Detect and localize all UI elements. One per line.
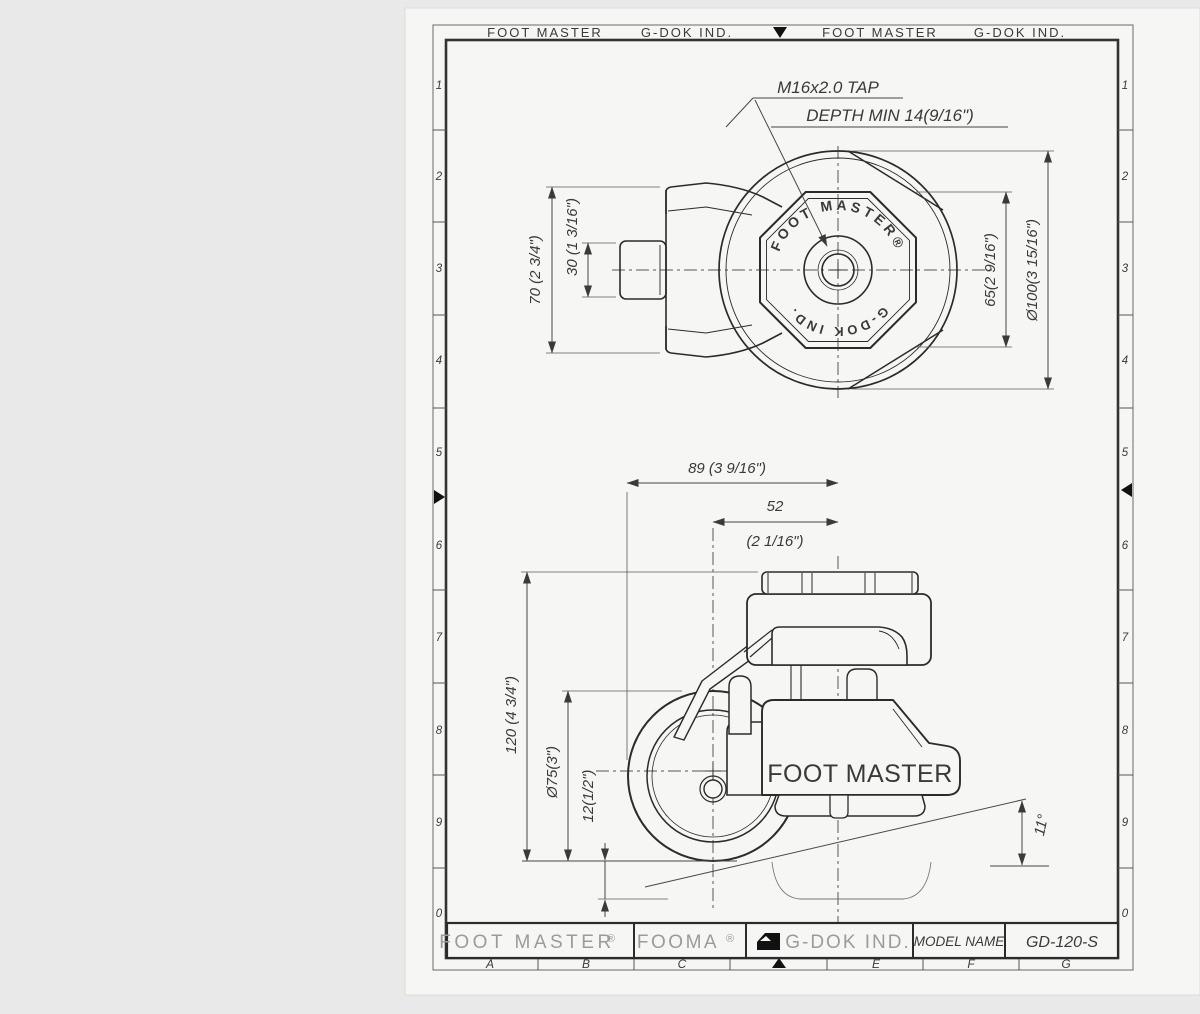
header-text: G-DOK IND. [974,25,1066,40]
adjust-knob [762,572,918,594]
dim-tab-30: 30 (1 3/16") [564,198,581,276]
zone-number: 6 [436,540,443,552]
registered-mark-icon: ® [726,933,734,945]
axle-hole [704,780,722,798]
model-name-value: GD-120-S [1026,934,1098,951]
zone-number: 1 [436,80,442,92]
latch-pin [847,669,877,700]
drawing-page: { "frame": { "header_items": ["FOOT MAST… [0,0,1200,1014]
zone-number: 9 [1122,817,1129,829]
callout-line2: DEPTH MIN 14(9/16") [806,106,974,125]
zone-number: 3 [1122,263,1129,275]
zone-number: 2 [1121,171,1129,183]
zone-number: 0 [436,908,443,920]
header-text: G-DOK IND. [641,25,733,40]
dim-adjust-12: 12(1/2") [580,770,597,823]
plate-boss [772,627,907,665]
zone-number: 7 [1122,632,1129,644]
title-block: FOOT MASTER ® FOOMA ® G-DOK IND. MODEL N… [439,923,1118,958]
dim-offset-52: 52 [767,498,784,515]
zone-number: 6 [1122,540,1129,552]
spring-pin [729,676,751,734]
title-brand: FOOMA [637,932,719,953]
title-maker: G-DOK IND. [785,932,911,953]
zone-number: 4 [1122,355,1128,367]
title-company: FOOT MASTER [439,932,614,953]
dim-wheel-75: Ø75(3") [544,746,561,799]
dim-flats-65: 65(2 9/16") [982,233,999,307]
dim-diameter-100: Ø100(3 15/16") [1024,219,1041,322]
zone-number: 4 [436,355,442,367]
body-brand-label: FOOT MASTER [767,760,953,788]
zone-number: 2 [435,171,443,183]
zone-number: 0 [1122,908,1129,920]
dim-offset-inch: (2 1/16") [746,533,803,550]
header-text: FOOT MASTER [487,25,603,40]
header-text: FOOT MASTER [822,25,938,40]
dim-height-70: 70 (2 3/4") [527,235,544,305]
dim-width-89: 89 (3 9/16") [688,460,766,477]
zone-number: 8 [1122,725,1129,737]
model-name-label: MODEL NAME [914,934,1006,949]
callout-line1: M16x2.0 TAP [777,78,879,97]
cad-drawing-canvas: FOOT MASTER G-DOK IND. FOOT MASTER G-DOK… [0,0,1200,1014]
registered-mark-icon: ® [607,933,615,945]
zone-number: 1 [1122,80,1128,92]
dim-height-120: 120 (4 3/4") [503,676,520,754]
zone-number: 5 [436,447,443,459]
zone-number: 8 [436,725,443,737]
foot-pad-tab [830,795,848,818]
zone-number: 3 [436,263,443,275]
zone-number: 5 [1122,447,1129,459]
zone-number: 9 [436,817,443,829]
zone-number: 7 [436,632,443,644]
foot-pad [775,795,925,816]
